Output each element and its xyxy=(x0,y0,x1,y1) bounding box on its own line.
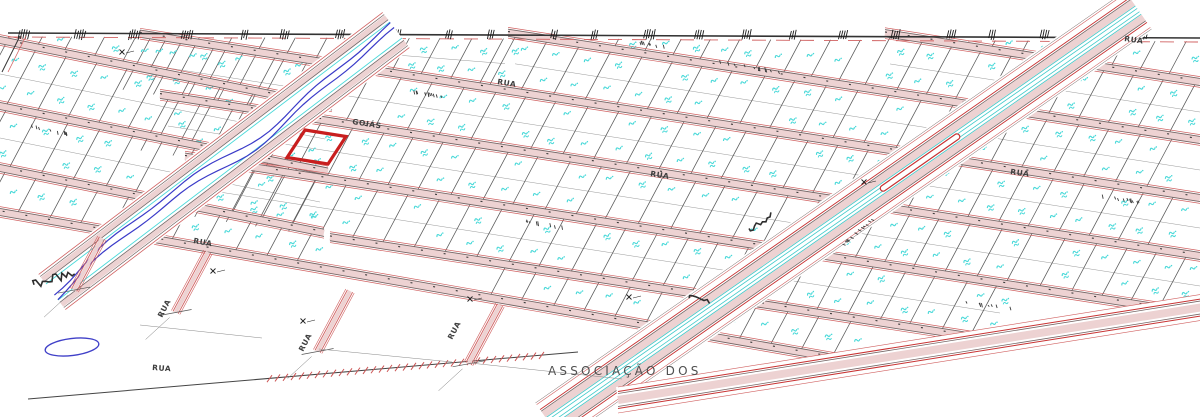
lot-line xyxy=(630,233,657,284)
lot-number-glyph xyxy=(547,138,553,142)
lot-number-glyph xyxy=(1137,231,1142,234)
lot-number-dot xyxy=(4,85,6,87)
lot-number-dot xyxy=(644,181,646,183)
tick xyxy=(138,31,140,40)
lot-number-glyph xyxy=(118,109,124,113)
lot-number-mark xyxy=(250,200,258,205)
lot-number-mark xyxy=(732,196,740,201)
smudge-stroke xyxy=(643,42,645,45)
lot-number-mark xyxy=(126,175,134,179)
lot-number-glyph xyxy=(962,319,967,322)
stub-pavement xyxy=(469,305,501,364)
lot-number-glyph xyxy=(928,57,933,60)
lot-number-glyph xyxy=(638,182,644,186)
lot-line xyxy=(883,215,910,266)
lot-number-mark xyxy=(543,226,552,234)
lot-number-dot xyxy=(536,249,538,251)
lot-number-mark xyxy=(896,106,904,111)
stream-side-street xyxy=(62,43,406,305)
stub-red xyxy=(173,251,205,311)
lot-number-glyph xyxy=(897,49,903,53)
lot-number-mark xyxy=(480,48,489,56)
lot-number-mark xyxy=(11,57,19,61)
lot-number-mark xyxy=(628,121,636,126)
lot-number-dot xyxy=(810,89,812,91)
lot-number-dot xyxy=(558,52,560,54)
lot-number-mark xyxy=(1136,170,1144,174)
lot-line xyxy=(940,281,967,332)
lot-number-dot xyxy=(750,50,752,52)
lot-number-mark xyxy=(708,160,717,167)
lot-number-glyph xyxy=(1020,212,1025,215)
lot-number-mark xyxy=(638,181,647,189)
lot-number-glyph xyxy=(1182,291,1188,295)
lot-number-glyph xyxy=(1072,250,1078,254)
lot-number-glyph xyxy=(819,122,825,126)
lot-number-glyph xyxy=(1062,195,1067,198)
lot-mid-line xyxy=(168,126,1200,286)
lot-number-mark xyxy=(854,338,862,342)
lot-number-mark xyxy=(819,121,827,125)
stub-street xyxy=(439,303,505,391)
lot-number-mark xyxy=(886,72,895,80)
lot-number-glyph xyxy=(1181,208,1187,212)
lot-line xyxy=(416,142,443,193)
lot-number-mark xyxy=(693,45,702,53)
lot-number-mark xyxy=(533,191,541,196)
lot-number-dot xyxy=(1196,266,1198,268)
smudge-stroke xyxy=(1114,197,1116,200)
lot-number-mark xyxy=(224,228,232,233)
lot-number-glyph xyxy=(1137,86,1143,90)
lot-number-glyph xyxy=(59,101,64,105)
lot-number-mark xyxy=(846,271,854,276)
tick xyxy=(838,31,840,40)
lot-number-dot xyxy=(586,141,588,143)
lot-number-glyph xyxy=(62,163,68,166)
lot-number-mark xyxy=(118,108,126,113)
lot-number-glyph xyxy=(95,170,100,173)
lot-number-glyph xyxy=(990,66,995,70)
lot-number-mark xyxy=(677,157,685,162)
lot-number-glyph xyxy=(285,72,290,76)
lot-line xyxy=(561,107,588,158)
lot-number-glyph xyxy=(420,47,426,51)
lot-number-mark xyxy=(258,182,266,187)
lot-number-dot xyxy=(321,247,323,249)
lot-number-dot xyxy=(634,121,636,123)
lot-number-glyph xyxy=(825,334,831,338)
lot-number-mark xyxy=(1061,271,1070,279)
lot-line xyxy=(0,172,5,209)
lot-number-glyph xyxy=(563,111,569,115)
lot-number-glyph xyxy=(94,166,100,170)
stub-street xyxy=(288,289,355,378)
lot-number-mark xyxy=(512,48,521,56)
lot-number-dot xyxy=(68,162,70,164)
lot-number-mark xyxy=(807,53,815,57)
smudge-stroke xyxy=(663,45,665,49)
lot-number-glyph xyxy=(1169,231,1175,235)
lot-number-mark xyxy=(761,321,769,325)
lot-number-dot xyxy=(1078,250,1080,252)
lot-number-dot xyxy=(75,198,77,200)
lot-line xyxy=(1052,125,1079,176)
lot-number-glyph xyxy=(397,115,403,119)
lot-number-glyph xyxy=(1133,260,1139,264)
lot-number-glyph xyxy=(193,228,198,232)
lot-number-dot xyxy=(106,75,108,77)
lot-number-mark xyxy=(414,204,422,209)
lot-line xyxy=(755,40,771,70)
lot-number-glyph xyxy=(1061,272,1067,276)
lot-number-glyph xyxy=(180,125,185,129)
lot-number-glyph xyxy=(1170,234,1175,237)
lot-number-glyph xyxy=(918,226,924,230)
lot-number-dot xyxy=(727,47,729,49)
lot-number-glyph xyxy=(761,322,767,326)
lot-number-glyph xyxy=(276,213,282,217)
lot-number-dot xyxy=(231,99,233,101)
tick-cluster xyxy=(838,30,847,39)
lot-number-dot xyxy=(996,321,998,323)
lot-number-dot xyxy=(526,46,528,48)
lot-number-dot xyxy=(880,244,882,246)
lot-number-mark xyxy=(901,249,910,257)
lot-number-glyph xyxy=(746,54,751,58)
lot-number-glyph xyxy=(106,144,111,147)
lot-number-glyph xyxy=(1014,243,1019,247)
lot-number-glyph xyxy=(1133,51,1139,55)
lot-line xyxy=(862,95,889,146)
lot-line xyxy=(1100,248,1127,299)
lot-number-mark xyxy=(1170,89,1179,97)
lot-number-mark xyxy=(702,193,710,198)
lot-line xyxy=(800,316,819,351)
lot-number-glyph xyxy=(543,227,549,231)
lot-number-glyph xyxy=(540,78,546,82)
lot-number-glyph xyxy=(1136,170,1142,174)
tick xyxy=(846,30,848,39)
lot-number-mark xyxy=(769,170,778,178)
lot-number-glyph xyxy=(1108,224,1114,228)
lot-number-glyph xyxy=(451,155,457,159)
lot-number-mark xyxy=(721,47,729,52)
lot-number-glyph xyxy=(605,237,610,241)
lot-line xyxy=(449,38,472,81)
lot-line xyxy=(1145,139,1172,190)
lot-number-glyph xyxy=(1102,167,1108,170)
lot-number-mark xyxy=(605,293,613,298)
lot-number-dot xyxy=(161,48,163,50)
lot-number-mark xyxy=(389,142,397,147)
lot-number-mark xyxy=(70,70,79,77)
lot-number-glyph xyxy=(723,137,729,141)
lot-number-glyph xyxy=(1165,265,1171,269)
lot-number-glyph xyxy=(708,161,714,165)
lot-line xyxy=(738,76,765,127)
lot-number-glyph xyxy=(666,100,671,103)
lot-number-dot xyxy=(896,223,898,225)
smudge-stroke xyxy=(1009,307,1011,310)
lot-number-glyph xyxy=(126,175,132,178)
lot-number-glyph xyxy=(428,122,433,125)
lot-number-dot xyxy=(872,300,874,302)
lot-number-glyph xyxy=(886,73,892,77)
lot-number-glyph xyxy=(1165,175,1171,179)
lot-number-dot xyxy=(355,164,357,166)
smudge-stroke xyxy=(554,225,556,228)
lot-number-dot xyxy=(82,135,84,137)
lot-number-glyph xyxy=(890,223,896,227)
lot-number-glyph xyxy=(523,135,528,138)
lot-number-mark xyxy=(681,74,690,81)
lot-number-dot xyxy=(1003,180,1005,182)
lot-number-dot xyxy=(700,248,702,250)
lot-number-dot xyxy=(348,220,350,222)
smudge-stroke xyxy=(431,93,433,96)
lot-number-glyph xyxy=(1110,227,1115,230)
lot-number-glyph xyxy=(496,246,502,250)
lot-number-glyph xyxy=(834,58,840,62)
street-label: RUA xyxy=(152,363,172,373)
lot-number-mark xyxy=(694,248,703,255)
lot-number-glyph xyxy=(1188,119,1194,123)
tick xyxy=(343,29,345,38)
stub-pavement xyxy=(318,291,350,351)
lot-number-glyph xyxy=(1055,131,1061,134)
lot-number-dot xyxy=(367,138,369,140)
lot-number-mark xyxy=(521,46,529,51)
lot-line xyxy=(1146,197,1173,248)
lot-number-glyph xyxy=(351,168,356,171)
property-line xyxy=(439,369,463,391)
lot-number-dot xyxy=(472,241,474,243)
lot-number-glyph xyxy=(694,248,700,252)
lot-number-dot xyxy=(508,103,510,105)
lot-number-glyph xyxy=(977,294,983,298)
lot-number-mark xyxy=(1133,260,1141,264)
lot-number-glyph xyxy=(40,68,45,71)
tick xyxy=(646,29,648,39)
smudge-stroke xyxy=(429,93,431,96)
lot-line xyxy=(943,224,970,275)
lot-number-glyph xyxy=(308,148,314,152)
lot-number-glyph xyxy=(771,174,776,178)
lot-number-dot xyxy=(932,53,934,55)
lot-number-glyph xyxy=(635,92,641,96)
lot-number-dot xyxy=(195,53,197,55)
lot-number-glyph xyxy=(581,141,587,145)
lot-number-glyph xyxy=(740,80,746,84)
lot-number-mark xyxy=(570,82,578,86)
lot-number-glyph xyxy=(769,171,775,175)
lot-line xyxy=(507,214,534,265)
lot-number-dot xyxy=(16,123,18,125)
lot-number-glyph xyxy=(1191,56,1197,60)
lot-number-glyph xyxy=(439,69,444,72)
lot-number-mark xyxy=(1165,265,1173,269)
lot-number-glyph xyxy=(174,112,180,116)
lot-number-mark xyxy=(928,309,936,314)
lot-number-dot xyxy=(293,152,295,154)
smudge-stroke xyxy=(991,304,993,306)
lot-number-glyph xyxy=(1166,179,1171,182)
lot-number-mark xyxy=(834,57,842,62)
lot-number-glyph xyxy=(668,187,674,191)
lot-number-mark xyxy=(581,141,589,146)
lot-number-glyph xyxy=(39,197,44,201)
lot-number-mark xyxy=(1001,298,1010,305)
lot-number-glyph xyxy=(436,233,442,237)
lot-line xyxy=(831,90,858,141)
lot-number-mark xyxy=(1040,155,1048,160)
lot-number-mark xyxy=(849,126,857,131)
tick xyxy=(241,30,243,40)
lot-number-glyph xyxy=(899,52,904,56)
lot-number-glyph xyxy=(279,203,285,207)
smudge-stroke xyxy=(433,94,435,97)
lot-number-glyph xyxy=(996,265,1002,269)
lot-line xyxy=(799,86,826,137)
hatched-street xyxy=(28,352,578,399)
lot-number-glyph xyxy=(914,79,920,83)
lot-number-mark xyxy=(1088,135,1097,142)
tick xyxy=(695,30,697,38)
lot-number-glyph xyxy=(1005,41,1011,45)
lot-number-dot xyxy=(474,181,476,183)
lot-number-glyph xyxy=(37,194,43,198)
lot-number-mark xyxy=(668,187,676,191)
lot-number-glyph xyxy=(896,107,902,111)
lot-number-dot xyxy=(1139,50,1141,52)
lot-line xyxy=(815,262,842,313)
stub-red xyxy=(180,254,212,314)
lot-number-glyph xyxy=(544,286,550,290)
lot-mid-line xyxy=(515,64,1200,170)
lot-line xyxy=(469,92,496,143)
lot-number-glyph xyxy=(661,242,667,246)
lot-number-glyph xyxy=(634,244,639,248)
lot-number-glyph xyxy=(965,262,970,266)
lot-number-glyph xyxy=(451,45,457,49)
lot-number-glyph xyxy=(42,129,48,133)
lot-number-dot xyxy=(638,240,640,242)
lot-number-glyph xyxy=(38,64,44,67)
lot-number-mark xyxy=(0,85,6,90)
lot-number-glyph xyxy=(849,126,855,130)
lot-number-dot xyxy=(860,338,862,340)
lot-number-mark xyxy=(645,152,654,160)
lot-number-dot xyxy=(457,45,459,47)
lot-number-mark xyxy=(1137,86,1145,91)
lot-number-dot xyxy=(903,48,905,50)
lot-number-glyph xyxy=(1057,135,1062,138)
lot-number-glyph xyxy=(775,54,781,58)
lot-number-mark xyxy=(897,48,906,56)
lot-number-mark xyxy=(104,140,113,147)
lot-number-mark xyxy=(436,232,444,237)
lot-number-mark xyxy=(946,80,955,88)
lot-number-glyph xyxy=(87,104,93,108)
lot-number-mark xyxy=(1133,50,1141,54)
lot-number-glyph xyxy=(928,310,934,314)
lot-number-mark xyxy=(349,164,358,171)
lot-number-glyph xyxy=(987,205,993,209)
illegible-street-name xyxy=(639,41,664,50)
lot-number-mark xyxy=(420,46,429,53)
lot-number-dot xyxy=(360,195,362,197)
lot-number-glyph xyxy=(807,53,813,57)
lot-number-glyph xyxy=(514,162,520,166)
lot-number-glyph xyxy=(437,178,443,182)
tick xyxy=(749,29,751,40)
lot-number-glyph xyxy=(460,128,465,132)
lot-number-mark xyxy=(914,78,922,83)
smudge-stroke xyxy=(57,131,59,135)
lot-number-mark xyxy=(635,92,643,97)
lot-number-dot xyxy=(983,293,985,295)
lot-number-dot xyxy=(5,150,7,152)
lot-number-mark xyxy=(963,258,972,266)
lot-number-mark xyxy=(834,180,842,185)
lot-number-glyph xyxy=(677,158,683,162)
lot-number-dot xyxy=(1194,118,1196,120)
lot-number-mark xyxy=(926,53,935,60)
pond-outline xyxy=(44,335,100,358)
tick xyxy=(653,29,655,39)
lot-number-mark xyxy=(362,138,371,146)
tick xyxy=(23,29,25,38)
lot-number-dot xyxy=(1095,135,1097,137)
lot-number-mark xyxy=(723,137,731,142)
lot-number-glyph xyxy=(887,76,892,79)
lot-number-glyph xyxy=(1012,240,1018,244)
lot-line xyxy=(449,147,476,198)
lot-number-mark xyxy=(100,75,108,79)
lot-number-dot xyxy=(443,177,445,179)
lot-number-mark xyxy=(584,57,592,62)
hatched-street-line xyxy=(28,352,578,399)
lot-number-mark xyxy=(451,155,459,159)
lot-number-glyph xyxy=(410,66,415,69)
lot-number-glyph xyxy=(584,58,590,62)
lot-number-glyph xyxy=(854,338,860,342)
lot-number-dot xyxy=(682,157,684,159)
lot-number-glyph xyxy=(926,53,932,57)
lot-number-glyph xyxy=(258,183,264,187)
lot-number-mark xyxy=(1190,266,1198,270)
lot-number-mark xyxy=(1165,175,1174,182)
lot-number-mark xyxy=(695,100,703,104)
lot-number-dot xyxy=(639,300,641,302)
lot-number-dot xyxy=(197,224,199,226)
lot-line xyxy=(689,126,716,177)
lot-number-dot xyxy=(457,155,459,157)
cadastral-map-canvas: RUARUARUARUARUARUAGOIÁSRUARUARUAASSOCIAÇ… xyxy=(0,0,1200,417)
lot-number-mark xyxy=(772,86,781,94)
tick-cluster xyxy=(644,29,656,40)
lot-number-glyph xyxy=(1023,129,1028,132)
lot-number-glyph xyxy=(647,156,652,160)
lot-line xyxy=(412,200,439,251)
tick xyxy=(794,30,796,40)
lot-number-glyph xyxy=(1156,115,1162,119)
lot-number-glyph xyxy=(289,241,295,245)
smudge-stroke xyxy=(436,94,438,97)
lot-number-mark xyxy=(437,177,445,181)
lot-number-glyph xyxy=(1101,255,1107,259)
